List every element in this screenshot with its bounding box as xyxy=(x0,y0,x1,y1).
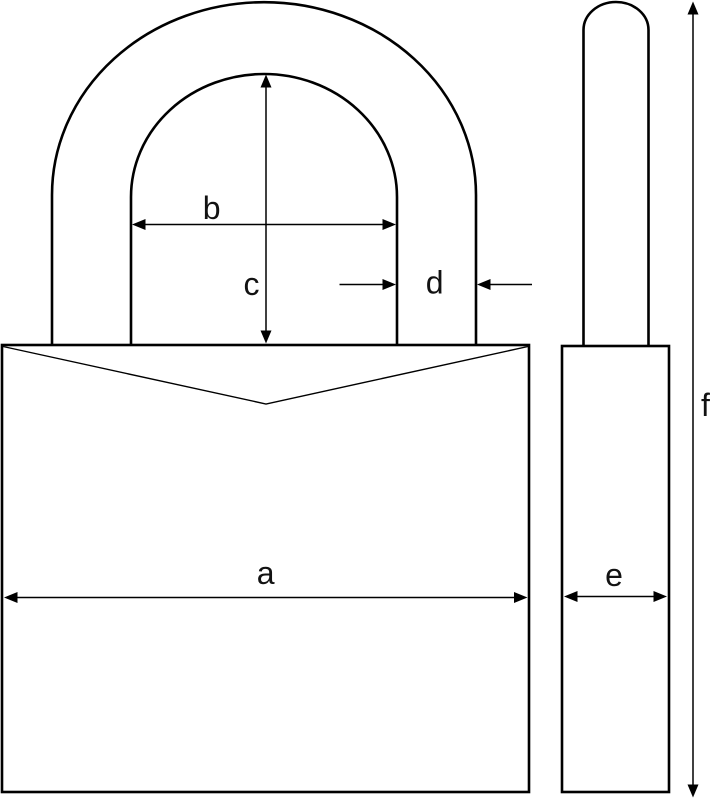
svg-text:b: b xyxy=(203,190,221,226)
svg-text:a: a xyxy=(257,555,275,591)
svg-text:d: d xyxy=(426,265,444,301)
svg-text:e: e xyxy=(605,557,623,593)
svg-text:f: f xyxy=(701,387,710,423)
svg-text:c: c xyxy=(244,266,260,302)
